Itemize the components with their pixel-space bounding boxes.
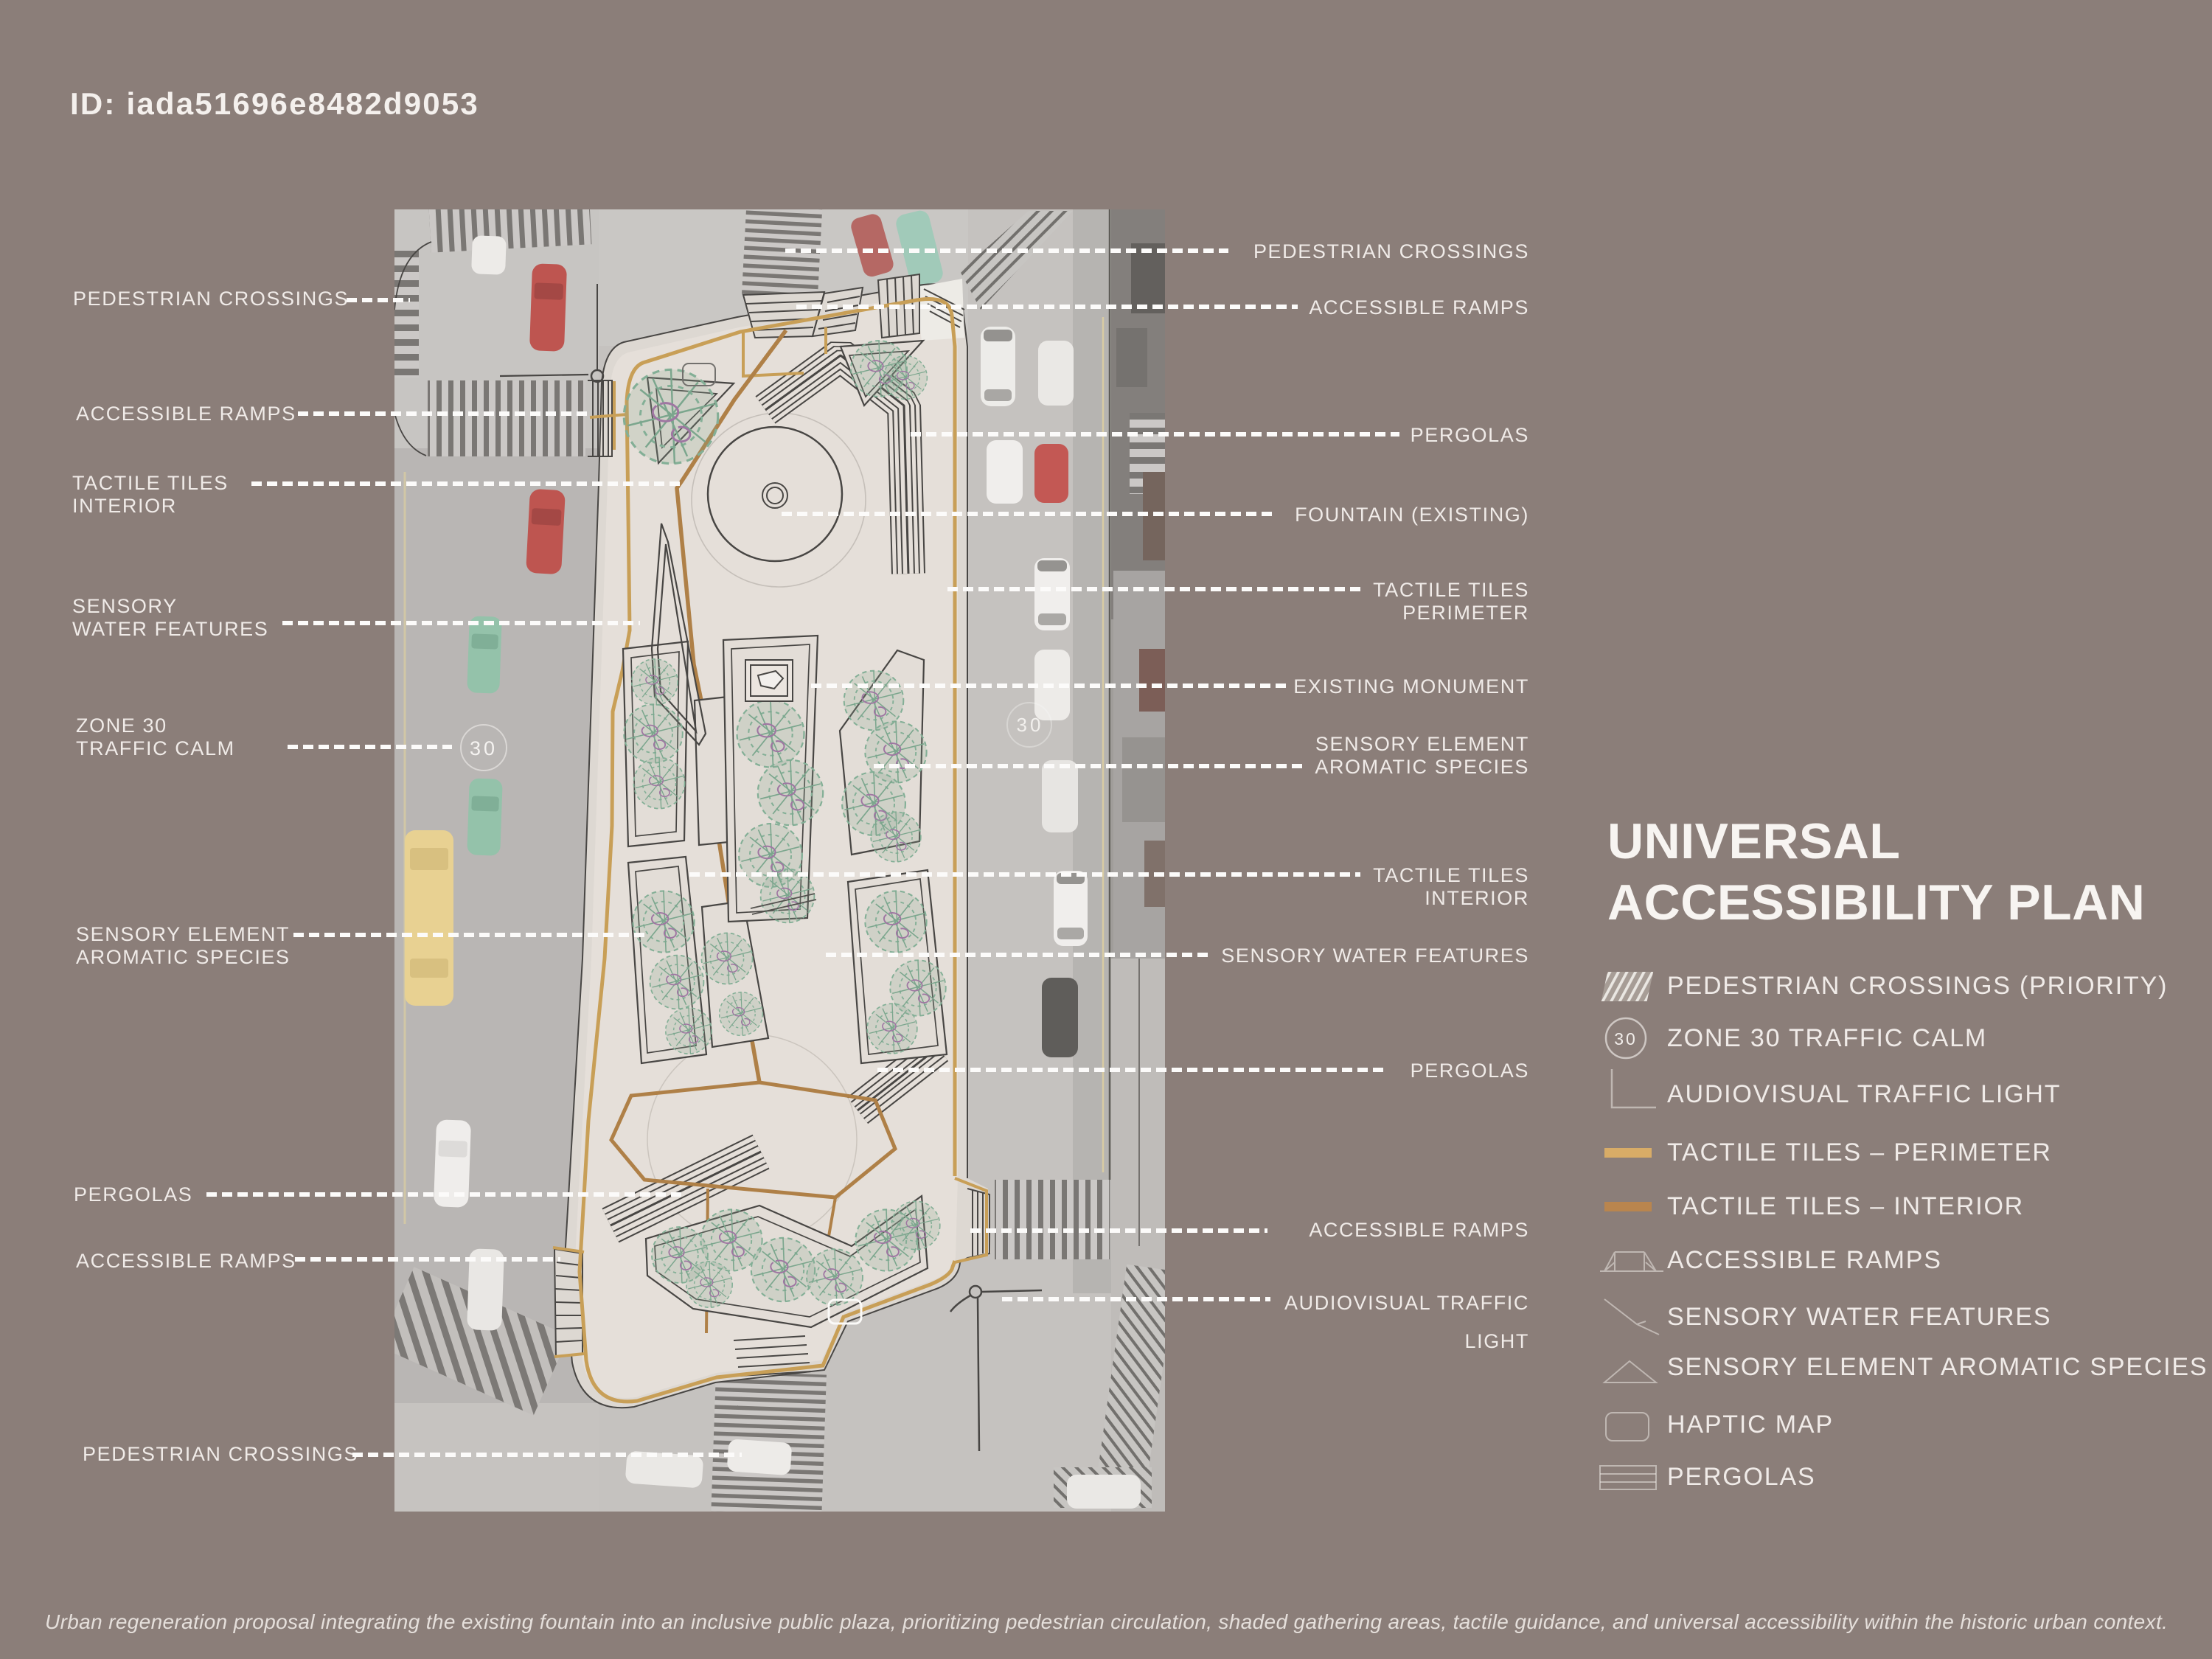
svg-text:30: 30 (1614, 1029, 1638, 1048)
